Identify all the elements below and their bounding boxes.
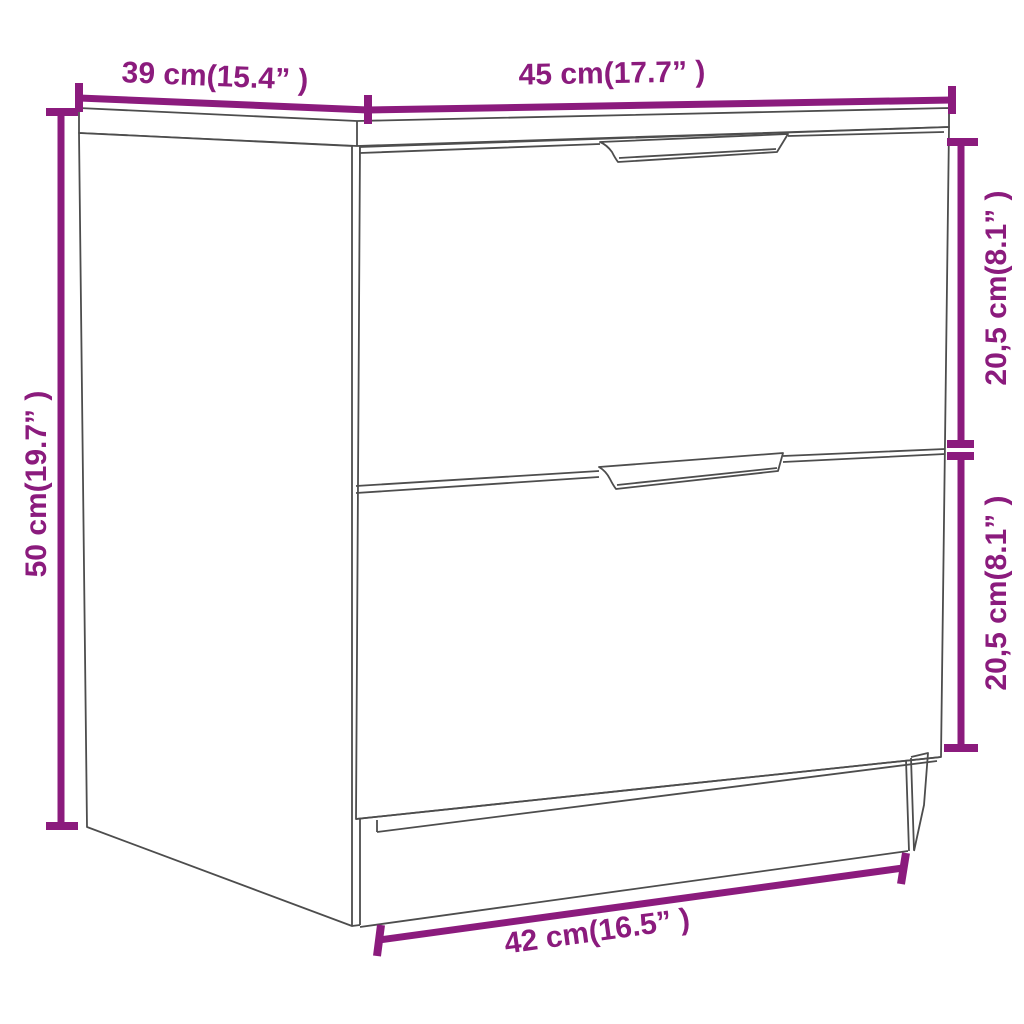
plinth-right-edge — [906, 758, 914, 851]
left-side-outline — [79, 133, 352, 926]
dimension-depth-line — [79, 98, 368, 110]
diagram-canvas: 39 cm(15.4” ) 45 cm(17.7” ) 50 cm(19.7” … — [0, 0, 1024, 1024]
dimension-bottom-drawer-label: 20,5 cm(8.1” ) — [980, 495, 1013, 690]
left-side-panel — [79, 133, 352, 926]
dimension-bottom-drawer — [944, 456, 978, 748]
dimension-top-drawer-label: 20,5 cm(8.1” ) — [980, 190, 1013, 385]
dimension-top-drawer — [947, 142, 978, 444]
dimension-width-line — [368, 100, 952, 110]
dimension-height-label: 50 cm(19.7” ) — [20, 391, 53, 578]
dimension-width-label: 45 cm(17.7” ) — [518, 55, 705, 91]
cabinet-line-art — [79, 108, 949, 927]
dimension-diagram: 39 cm(15.4” ) 45 cm(17.7” ) 50 cm(19.7” … — [0, 0, 1024, 1024]
dimension-depth-label: 39 cm(15.4” ) — [121, 56, 309, 97]
